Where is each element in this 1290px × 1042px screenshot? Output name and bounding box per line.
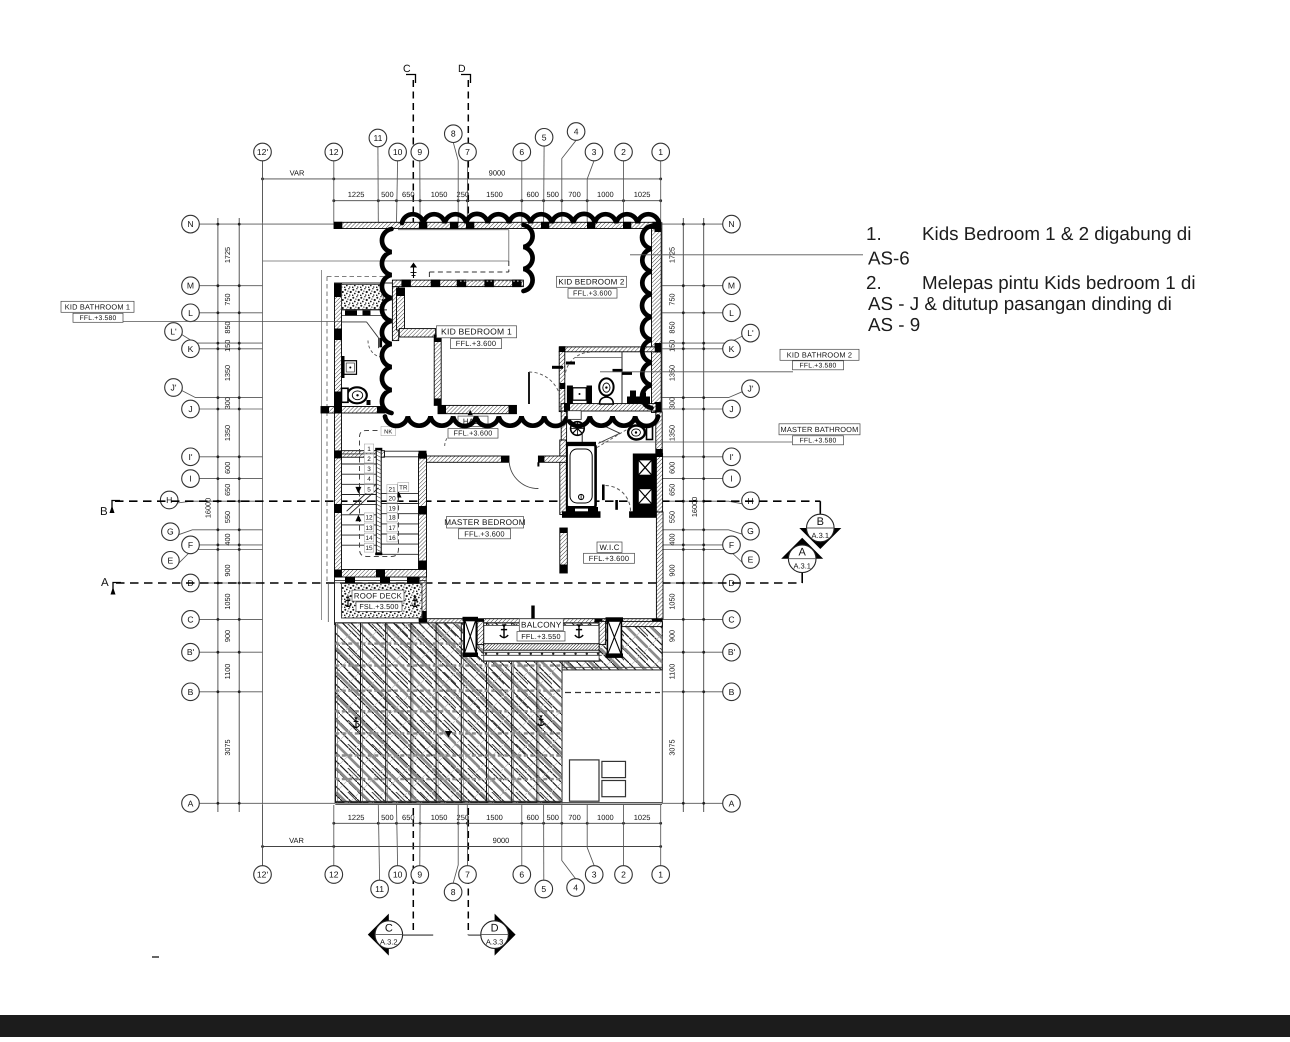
svg-text:Kids Bedroom 1 & 2 digabung di: Kids Bedroom 1 & 2 digabung di bbox=[922, 223, 1191, 244]
svg-text:MASTER BEDROOM: MASTER BEDROOM bbox=[444, 518, 526, 527]
svg-text:1050: 1050 bbox=[223, 593, 232, 609]
svg-text:FFL.+3.600: FFL.+3.600 bbox=[456, 339, 497, 348]
svg-text:900: 900 bbox=[223, 564, 232, 576]
svg-text:G: G bbox=[747, 526, 754, 536]
svg-text:21: 21 bbox=[389, 486, 397, 493]
svg-text:11: 11 bbox=[373, 133, 382, 143]
svg-text:1.: 1. bbox=[866, 223, 882, 244]
svg-text:7: 7 bbox=[465, 147, 470, 157]
svg-text:I': I' bbox=[729, 452, 733, 462]
svg-text:300: 300 bbox=[668, 397, 677, 409]
svg-text:1225: 1225 bbox=[348, 190, 365, 199]
svg-text:17: 17 bbox=[389, 525, 397, 532]
svg-text:14: 14 bbox=[365, 535, 373, 542]
svg-text:A: A bbox=[799, 547, 807, 559]
svg-text:B': B' bbox=[728, 647, 736, 657]
svg-text:D: D bbox=[458, 63, 466, 75]
svg-text:KID BATHROOM 2: KID BATHROOM 2 bbox=[787, 350, 853, 359]
svg-text:1225: 1225 bbox=[348, 813, 365, 822]
svg-text:15: 15 bbox=[365, 545, 373, 552]
svg-text:300: 300 bbox=[223, 397, 232, 409]
svg-text:18: 18 bbox=[389, 515, 397, 522]
svg-text:AS - J & ditutup pasangan dind: AS - J & ditutup pasangan dinding di bbox=[868, 293, 1172, 314]
svg-text:8: 8 bbox=[451, 129, 456, 139]
svg-text:1050: 1050 bbox=[668, 593, 677, 609]
svg-text:10: 10 bbox=[393, 147, 403, 157]
svg-text:B: B bbox=[817, 516, 824, 528]
svg-text:C: C bbox=[187, 614, 193, 624]
svg-text:FFL.+3.550: FFL.+3.550 bbox=[521, 632, 561, 641]
svg-text:7: 7 bbox=[465, 870, 470, 880]
svg-text:650: 650 bbox=[402, 813, 415, 822]
svg-text:4: 4 bbox=[574, 127, 579, 137]
svg-text:13: 13 bbox=[365, 525, 373, 532]
svg-text:19: 19 bbox=[389, 506, 397, 513]
svg-text:9000: 9000 bbox=[489, 169, 506, 178]
svg-text:6: 6 bbox=[519, 870, 524, 880]
svg-text:600: 600 bbox=[526, 813, 539, 822]
svg-text:G: G bbox=[167, 527, 174, 537]
svg-text:NK: NK bbox=[384, 429, 392, 435]
svg-text:D: D bbox=[491, 923, 499, 935]
svg-text:FFL.+3.580: FFL.+3.580 bbox=[800, 363, 837, 370]
svg-text:5: 5 bbox=[542, 132, 547, 142]
svg-text:F: F bbox=[729, 540, 734, 550]
svg-text:5: 5 bbox=[541, 884, 546, 894]
svg-text:N: N bbox=[728, 219, 734, 229]
svg-text:L: L bbox=[729, 308, 734, 318]
svg-text:A.3.3: A.3.3 bbox=[486, 938, 504, 947]
svg-text:400: 400 bbox=[668, 533, 677, 545]
svg-text:FSL.+3.500: FSL.+3.500 bbox=[359, 602, 398, 611]
svg-text:1000: 1000 bbox=[597, 813, 614, 822]
svg-text:FFL.+3.600: FFL.+3.600 bbox=[573, 289, 612, 298]
svg-text:A.3.1: A.3.1 bbox=[793, 562, 811, 571]
svg-text:F: F bbox=[188, 540, 193, 550]
svg-text:4: 4 bbox=[367, 476, 371, 483]
svg-text:1: 1 bbox=[367, 446, 371, 453]
svg-text:FFL.+3.580: FFL.+3.580 bbox=[80, 315, 117, 322]
svg-text:A: A bbox=[101, 577, 109, 589]
svg-text:B: B bbox=[188, 687, 194, 697]
svg-text:650: 650 bbox=[223, 484, 232, 496]
svg-text:750: 750 bbox=[668, 293, 677, 305]
svg-text:KID BEDROOM 1: KID BEDROOM 1 bbox=[441, 327, 512, 337]
svg-text:A: A bbox=[188, 798, 194, 808]
svg-text:500: 500 bbox=[546, 813, 559, 822]
svg-text:VAR: VAR bbox=[290, 169, 305, 178]
svg-text:3: 3 bbox=[367, 466, 371, 473]
svg-text:600: 600 bbox=[668, 462, 677, 474]
svg-text:FFL.+3.600: FFL.+3.600 bbox=[464, 529, 505, 538]
svg-text:KID BATHROOM 1: KID BATHROOM 1 bbox=[65, 302, 131, 311]
svg-text:N: N bbox=[187, 219, 193, 229]
svg-text:L': L' bbox=[170, 327, 177, 337]
svg-text:12: 12 bbox=[329, 870, 339, 880]
svg-text:10: 10 bbox=[393, 870, 403, 880]
svg-text:850: 850 bbox=[223, 321, 232, 333]
svg-text:750: 750 bbox=[223, 293, 232, 305]
svg-text:1350: 1350 bbox=[223, 365, 232, 381]
svg-text:2: 2 bbox=[621, 870, 626, 880]
svg-text:1050: 1050 bbox=[431, 813, 448, 822]
svg-text:550: 550 bbox=[223, 511, 232, 523]
svg-text:I: I bbox=[730, 474, 732, 484]
svg-text:J': J' bbox=[171, 383, 177, 393]
svg-text:E: E bbox=[748, 555, 754, 565]
svg-text:1025: 1025 bbox=[634, 190, 651, 199]
svg-text:J': J' bbox=[748, 384, 754, 394]
svg-text:2: 2 bbox=[621, 147, 626, 157]
svg-text:1100: 1100 bbox=[223, 664, 232, 680]
svg-text:W.I.C: W.I.C bbox=[599, 543, 619, 552]
svg-text:1025: 1025 bbox=[634, 813, 651, 822]
svg-text:ROOF DECK: ROOF DECK bbox=[354, 591, 403, 600]
svg-text:J: J bbox=[729, 404, 733, 414]
svg-text:20: 20 bbox=[389, 495, 397, 502]
svg-text:600: 600 bbox=[223, 462, 232, 474]
svg-text:9: 9 bbox=[417, 870, 422, 880]
svg-text:150: 150 bbox=[223, 340, 232, 352]
svg-text:12': 12' bbox=[257, 870, 269, 880]
svg-text:VAR: VAR bbox=[289, 836, 304, 845]
svg-text:I: I bbox=[189, 474, 191, 484]
svg-text:Melepas pintu Kids bedroom 1 d: Melepas pintu Kids bedroom 1 di bbox=[922, 272, 1196, 293]
svg-text:B': B' bbox=[187, 647, 195, 657]
svg-text:12: 12 bbox=[365, 515, 373, 522]
svg-text:3075: 3075 bbox=[668, 739, 677, 755]
svg-text:4: 4 bbox=[573, 883, 578, 893]
svg-text:9: 9 bbox=[417, 147, 422, 157]
svg-text:MASTER BATHROOM: MASTER BATHROOM bbox=[780, 425, 858, 434]
svg-text:AS-6: AS-6 bbox=[868, 248, 910, 269]
svg-text:L: L bbox=[188, 308, 193, 318]
svg-text:1350: 1350 bbox=[223, 425, 232, 441]
svg-text:B: B bbox=[100, 506, 108, 518]
svg-text:3: 3 bbox=[592, 870, 597, 880]
svg-text:11: 11 bbox=[375, 884, 384, 894]
svg-text:600: 600 bbox=[526, 190, 539, 199]
svg-text:3075: 3075 bbox=[223, 739, 232, 755]
svg-text:J: J bbox=[188, 404, 192, 414]
svg-text:500: 500 bbox=[381, 190, 394, 199]
svg-text:12': 12' bbox=[257, 147, 269, 157]
svg-text:400: 400 bbox=[223, 533, 232, 545]
svg-text:3: 3 bbox=[592, 147, 597, 157]
svg-text:L': L' bbox=[747, 328, 754, 338]
svg-text:1350: 1350 bbox=[668, 425, 677, 441]
svg-text:C: C bbox=[385, 923, 393, 935]
svg-text:M: M bbox=[187, 281, 194, 291]
svg-text:H: H bbox=[166, 495, 172, 505]
svg-text:A.3.1: A.3.1 bbox=[812, 531, 830, 540]
svg-text:AS - 9: AS - 9 bbox=[868, 314, 920, 335]
svg-text:1050: 1050 bbox=[431, 190, 448, 199]
svg-text:900: 900 bbox=[223, 630, 232, 642]
svg-text:TR: TR bbox=[399, 485, 408, 492]
svg-text:K: K bbox=[188, 344, 194, 354]
svg-text:1500: 1500 bbox=[486, 190, 503, 199]
svg-text:850: 850 bbox=[668, 321, 677, 333]
svg-text:C: C bbox=[403, 63, 411, 75]
svg-text:5: 5 bbox=[367, 486, 371, 493]
svg-text:1725: 1725 bbox=[223, 247, 232, 263]
svg-text:700: 700 bbox=[568, 813, 581, 822]
svg-text:E: E bbox=[168, 555, 174, 565]
svg-text:A.3.2: A.3.2 bbox=[380, 938, 398, 947]
svg-text:M: M bbox=[728, 281, 735, 291]
svg-text:FFL.+3.600: FFL.+3.600 bbox=[589, 554, 630, 563]
svg-text:K: K bbox=[729, 344, 735, 354]
svg-text:1000: 1000 bbox=[597, 190, 614, 199]
svg-text:1500: 1500 bbox=[486, 813, 503, 822]
svg-text:FFL.+3.600: FFL.+3.600 bbox=[454, 429, 493, 438]
svg-text:900: 900 bbox=[668, 564, 677, 576]
svg-text:9000: 9000 bbox=[493, 836, 510, 845]
svg-text:8: 8 bbox=[451, 887, 456, 897]
svg-text:1100: 1100 bbox=[668, 664, 677, 680]
svg-text:B: B bbox=[729, 687, 735, 697]
svg-text:1350: 1350 bbox=[668, 365, 677, 381]
svg-text:C: C bbox=[728, 614, 734, 624]
svg-text:BALCONY: BALCONY bbox=[521, 621, 562, 630]
svg-text:FFL.+3.580: FFL.+3.580 bbox=[800, 438, 837, 445]
svg-text:900: 900 bbox=[668, 630, 677, 642]
svg-text:500: 500 bbox=[381, 813, 394, 822]
svg-text:700: 700 bbox=[568, 190, 581, 199]
svg-text:A: A bbox=[729, 798, 735, 808]
svg-text:16000: 16000 bbox=[690, 497, 699, 517]
svg-text:16: 16 bbox=[389, 535, 397, 542]
svg-text:650: 650 bbox=[402, 190, 415, 199]
svg-text:500: 500 bbox=[546, 190, 559, 199]
svg-text:I': I' bbox=[188, 452, 192, 462]
svg-text:150: 150 bbox=[668, 340, 677, 352]
svg-text:2.: 2. bbox=[866, 272, 882, 293]
svg-text:1: 1 bbox=[658, 870, 663, 880]
svg-text:650: 650 bbox=[668, 484, 677, 496]
svg-text:KID BEDROOM 2: KID BEDROOM 2 bbox=[558, 278, 625, 287]
svg-text:2: 2 bbox=[367, 456, 371, 463]
svg-text:6: 6 bbox=[519, 147, 524, 157]
svg-text:550: 550 bbox=[668, 511, 677, 523]
svg-text:1: 1 bbox=[658, 147, 663, 157]
svg-text:12: 12 bbox=[329, 147, 339, 157]
